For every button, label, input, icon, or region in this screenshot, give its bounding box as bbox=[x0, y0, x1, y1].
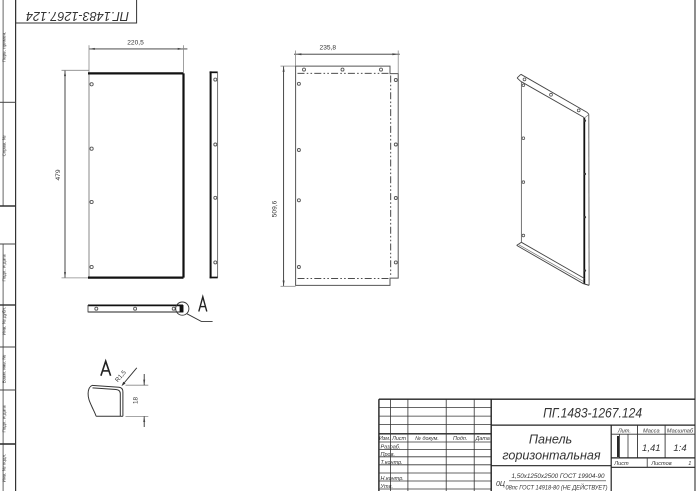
svg-text:Инв. № дубл.: Инв. № дубл. bbox=[2, 307, 7, 335]
svg-text:509,6: 509,6 bbox=[272, 200, 279, 217]
svg-text:Подп.: Подп. bbox=[453, 436, 467, 442]
svg-text:Лист: Лист bbox=[613, 461, 629, 467]
svg-text:Масса: Масса bbox=[643, 428, 660, 434]
svg-text:Справ. №: Справ. № bbox=[2, 136, 7, 157]
svg-text:1,41: 1,41 bbox=[642, 443, 661, 454]
svg-text:235,8: 235,8 bbox=[320, 44, 337, 51]
svg-text:Лит.: Лит. bbox=[617, 428, 631, 434]
svg-text:18: 18 bbox=[132, 397, 139, 405]
svg-text:Перв. примен.: Перв. примен. bbox=[2, 32, 7, 63]
svg-text:Лист: Лист bbox=[391, 436, 406, 442]
svg-text:1: 1 bbox=[688, 461, 691, 467]
svg-text:1:4: 1:4 bbox=[673, 443, 686, 454]
svg-text:№ докум.: № докум. bbox=[415, 436, 439, 442]
svg-text:Масштаб: Масштаб bbox=[667, 428, 694, 434]
svg-text:Дата: Дата bbox=[475, 436, 490, 442]
svg-text:ПГ.1483-1267.124: ПГ.1483-1267.124 bbox=[26, 9, 129, 23]
svg-text:Взам. инв. №: Взам. инв. № bbox=[2, 355, 7, 384]
svg-text:Панель: Панель bbox=[529, 432, 572, 446]
svg-text:Подп. и дата: Подп. и дата bbox=[2, 254, 7, 282]
svg-text:Т.контр.: Т.контр. bbox=[381, 460, 403, 466]
svg-text:479: 479 bbox=[55, 169, 62, 180]
svg-text:220,5: 220,5 bbox=[127, 40, 144, 47]
svg-text:Н.контр.: Н.контр. bbox=[381, 476, 404, 482]
svg-text:Инв. № подл.: Инв. № подл. bbox=[2, 454, 7, 483]
svg-text:Утв.: Утв. bbox=[380, 484, 394, 490]
svg-text:08пс ГОСТ 14918-80 (НЕ ДЕЙСТВУ: 08пс ГОСТ 14918-80 (НЕ ДЕЙСТВУЕТ) bbox=[506, 483, 608, 491]
svg-text:Изм.: Изм. bbox=[379, 436, 391, 442]
svg-text:1,50х1250х2500 ГОСТ 19904-90: 1,50х1250х2500 ГОСТ 19904-90 bbox=[512, 473, 605, 480]
svg-text:горизонтальная: горизонтальная bbox=[502, 448, 601, 462]
svg-text:ПГ.1483-1267.124: ПГ.1483-1267.124 bbox=[543, 404, 642, 420]
svg-text:Листов: Листов bbox=[650, 461, 671, 467]
svg-text:0Ц: 0Ц bbox=[496, 481, 505, 488]
svg-text:Разраб.: Разраб. bbox=[381, 444, 401, 450]
svg-text:Пров.: Пров. bbox=[381, 452, 396, 458]
svg-text:Подп. и дата: Подп. и дата bbox=[2, 405, 7, 433]
